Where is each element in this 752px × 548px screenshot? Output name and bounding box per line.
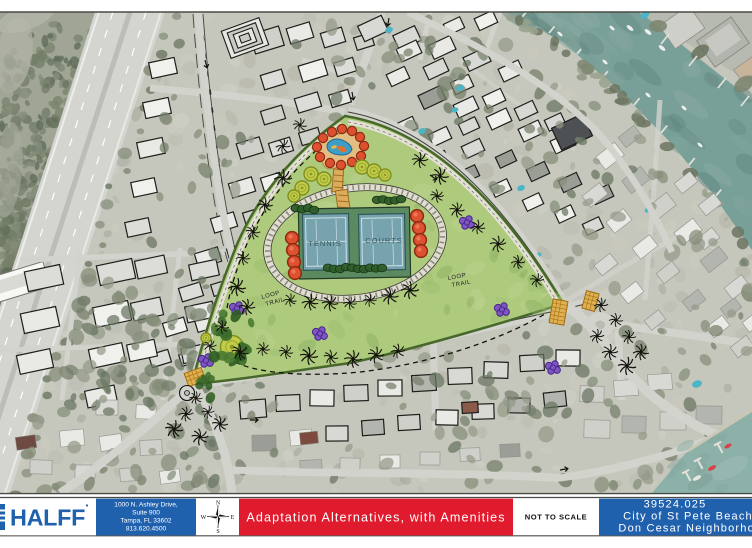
svg-text:COURTS: COURTS xyxy=(365,236,403,245)
svg-text:Adaptation Alternatives, with: Adaptation Alternatives, with Amenities xyxy=(246,511,505,525)
svg-text:E: E xyxy=(231,515,235,521)
svg-text:39524.025: 39524.025 xyxy=(644,499,707,511)
svg-text:NOT TO SCALE: NOT TO SCALE xyxy=(525,513,587,522)
svg-text:Suite 900: Suite 900 xyxy=(132,510,160,517)
svg-text:S: S xyxy=(216,529,219,535)
svg-text:813.620.4500: 813.620.4500 xyxy=(126,526,167,533)
svg-text:City of St Pete Beach: City of St Pete Beach xyxy=(623,511,752,523)
svg-text:HALFF: HALFF xyxy=(10,505,85,531)
svg-text:W: W xyxy=(201,515,207,521)
svg-text:TENNIS: TENNIS xyxy=(308,239,342,248)
svg-text:N: N xyxy=(216,501,221,507)
svg-text:Don Cesar Neighborhood: Don Cesar Neighborhood xyxy=(618,523,752,535)
svg-text:1000 N. Ashley Drive,: 1000 N. Ashley Drive, xyxy=(114,502,178,509)
svg-text:Tampa, FL 33602: Tampa, FL 33602 xyxy=(120,518,171,525)
